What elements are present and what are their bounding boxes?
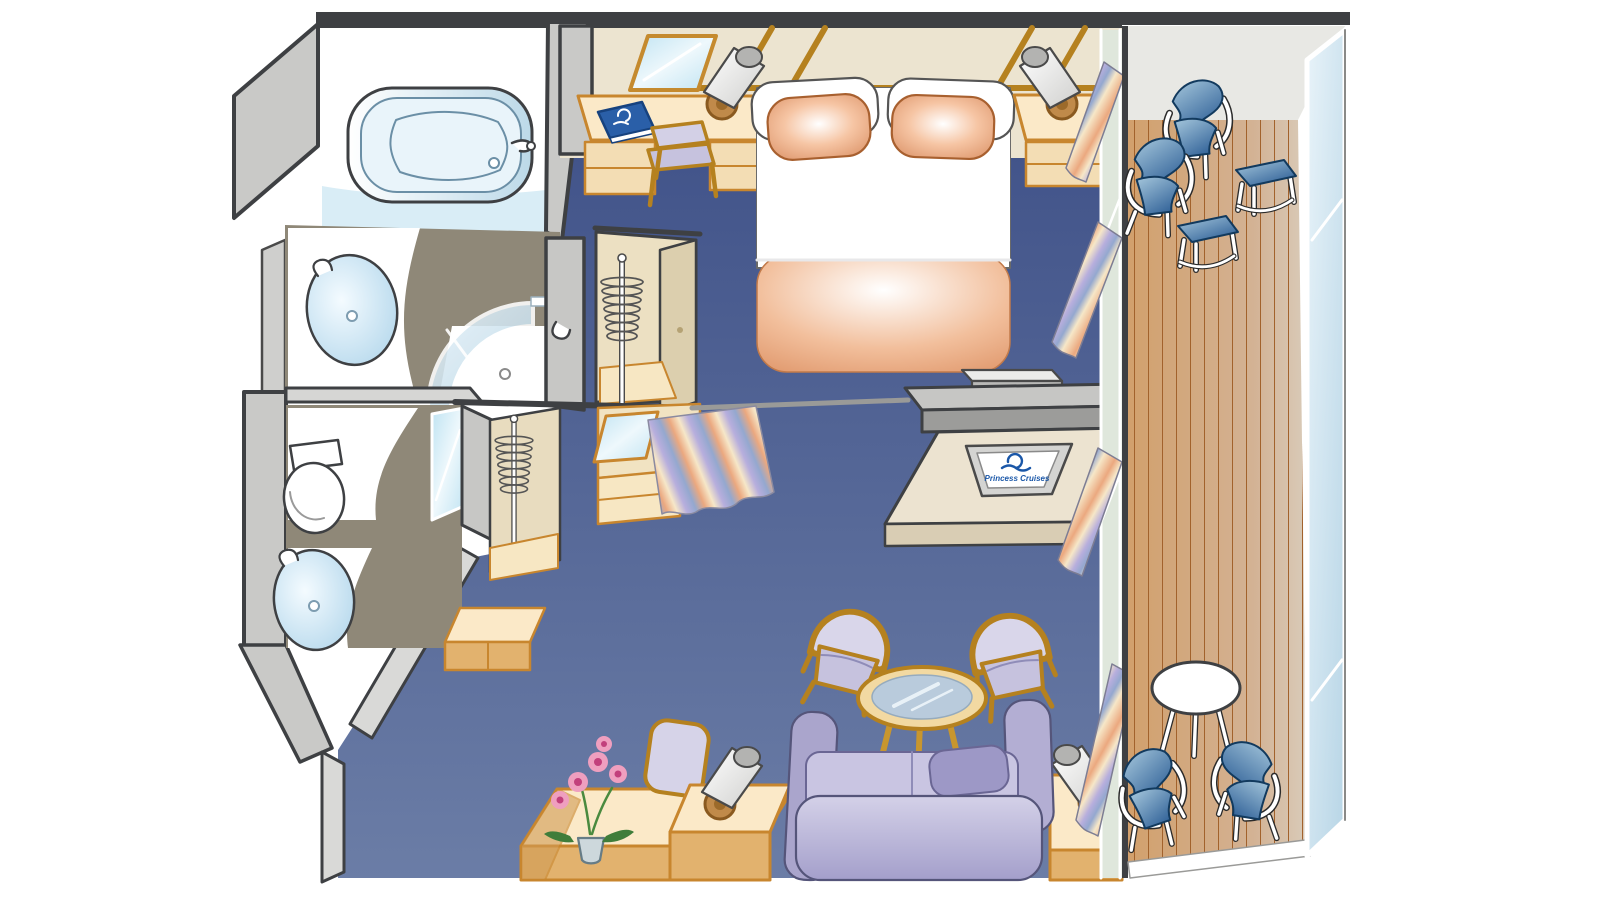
- second-closet: [490, 408, 560, 580]
- wardrobe-closet: [596, 232, 696, 414]
- wc-mirror: [432, 408, 464, 520]
- outer-wall-left-top: [234, 24, 318, 218]
- queen-bed: [751, 77, 1015, 372]
- balcony-top-wall: [1122, 12, 1350, 25]
- striped-curtain: [648, 406, 774, 514]
- sofa-front: [796, 796, 1042, 880]
- wc-right-wall: [462, 406, 492, 540]
- luggage-bench: [445, 608, 545, 670]
- bath-divider-wall: [286, 388, 482, 402]
- tv-brand-text: Princess Cruises: [985, 474, 1050, 483]
- bedroom-left-wall-cap: [560, 26, 592, 154]
- sofa-pillow: [928, 744, 1010, 798]
- wall-edge: [1122, 26, 1128, 878]
- floorplan-page: Cruise ship suite with balcony — isometr…: [0, 0, 1600, 900]
- bathroom: [285, 22, 588, 410]
- bathtub: [348, 88, 535, 202]
- shower-wall: [546, 238, 584, 410]
- entry-wall-upper: [240, 645, 332, 762]
- foot-blanket: [757, 255, 1010, 372]
- balcony: [1117, 26, 1345, 878]
- entry-wall-lower: [322, 752, 344, 882]
- floorplan-illustration: Cruise ship suite with balcony — isometr…: [0, 0, 1600, 900]
- glass-railing: [1307, 30, 1345, 856]
- top-wall: [316, 12, 1122, 28]
